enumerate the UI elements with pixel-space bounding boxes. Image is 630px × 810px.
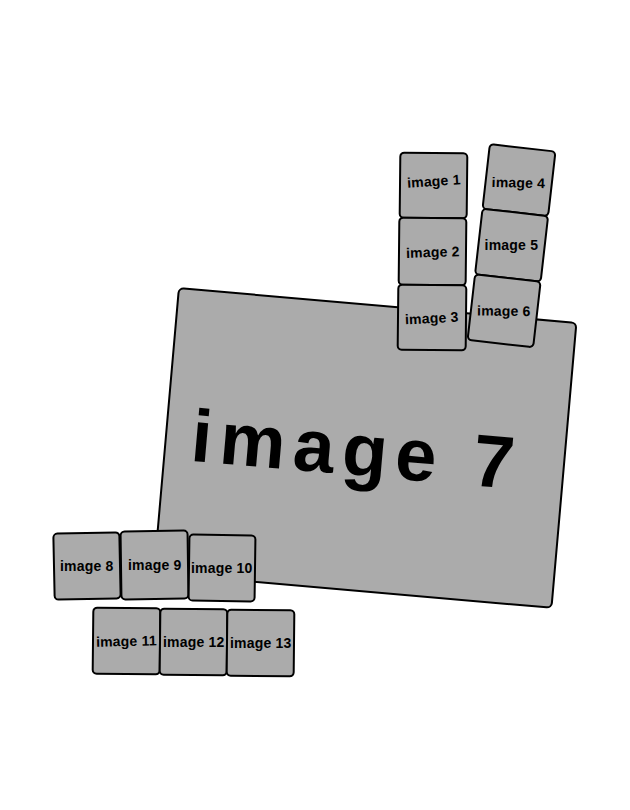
image-card-6[interactable]: image 6 [466, 273, 541, 348]
image-label: image 5 [485, 238, 539, 252]
image-card-9[interactable]: image 9 [120, 530, 190, 601]
image-card-1[interactable]: image 1 [399, 152, 469, 220]
image-label: image 2 [406, 244, 460, 260]
image-label: image 10 [191, 561, 253, 575]
image-card-2[interactable]: image 2 [398, 217, 468, 287]
image-label: image 11 [96, 633, 157, 648]
image-label: image 4 [492, 175, 546, 190]
image-label: image 13 [230, 636, 292, 650]
image-card-10[interactable]: image 10 [188, 534, 257, 603]
image-label: image 1 [406, 172, 460, 190]
image-label: image 12 [163, 635, 225, 649]
image-label: image 3 [405, 309, 459, 326]
image-card-3[interactable]: image 3 [397, 284, 468, 352]
image-card-13[interactable]: image 13 [226, 609, 296, 678]
image-card-5[interactable]: image 5 [474, 208, 549, 283]
image-card-4[interactable]: image 4 [481, 143, 556, 217]
image-label: image 7 [189, 399, 542, 503]
image-card-8[interactable]: image 8 [52, 531, 121, 600]
image-label: image 6 [477, 304, 531, 318]
image-label: image 9 [128, 558, 182, 572]
image-card-12[interactable]: image 12 [159, 608, 229, 677]
image-card-11[interactable]: image 11 [92, 607, 162, 676]
image-label: image 8 [60, 559, 114, 573]
collage-canvas: image 7 image 1 image 2 image 3 image 4 … [0, 0, 630, 810]
